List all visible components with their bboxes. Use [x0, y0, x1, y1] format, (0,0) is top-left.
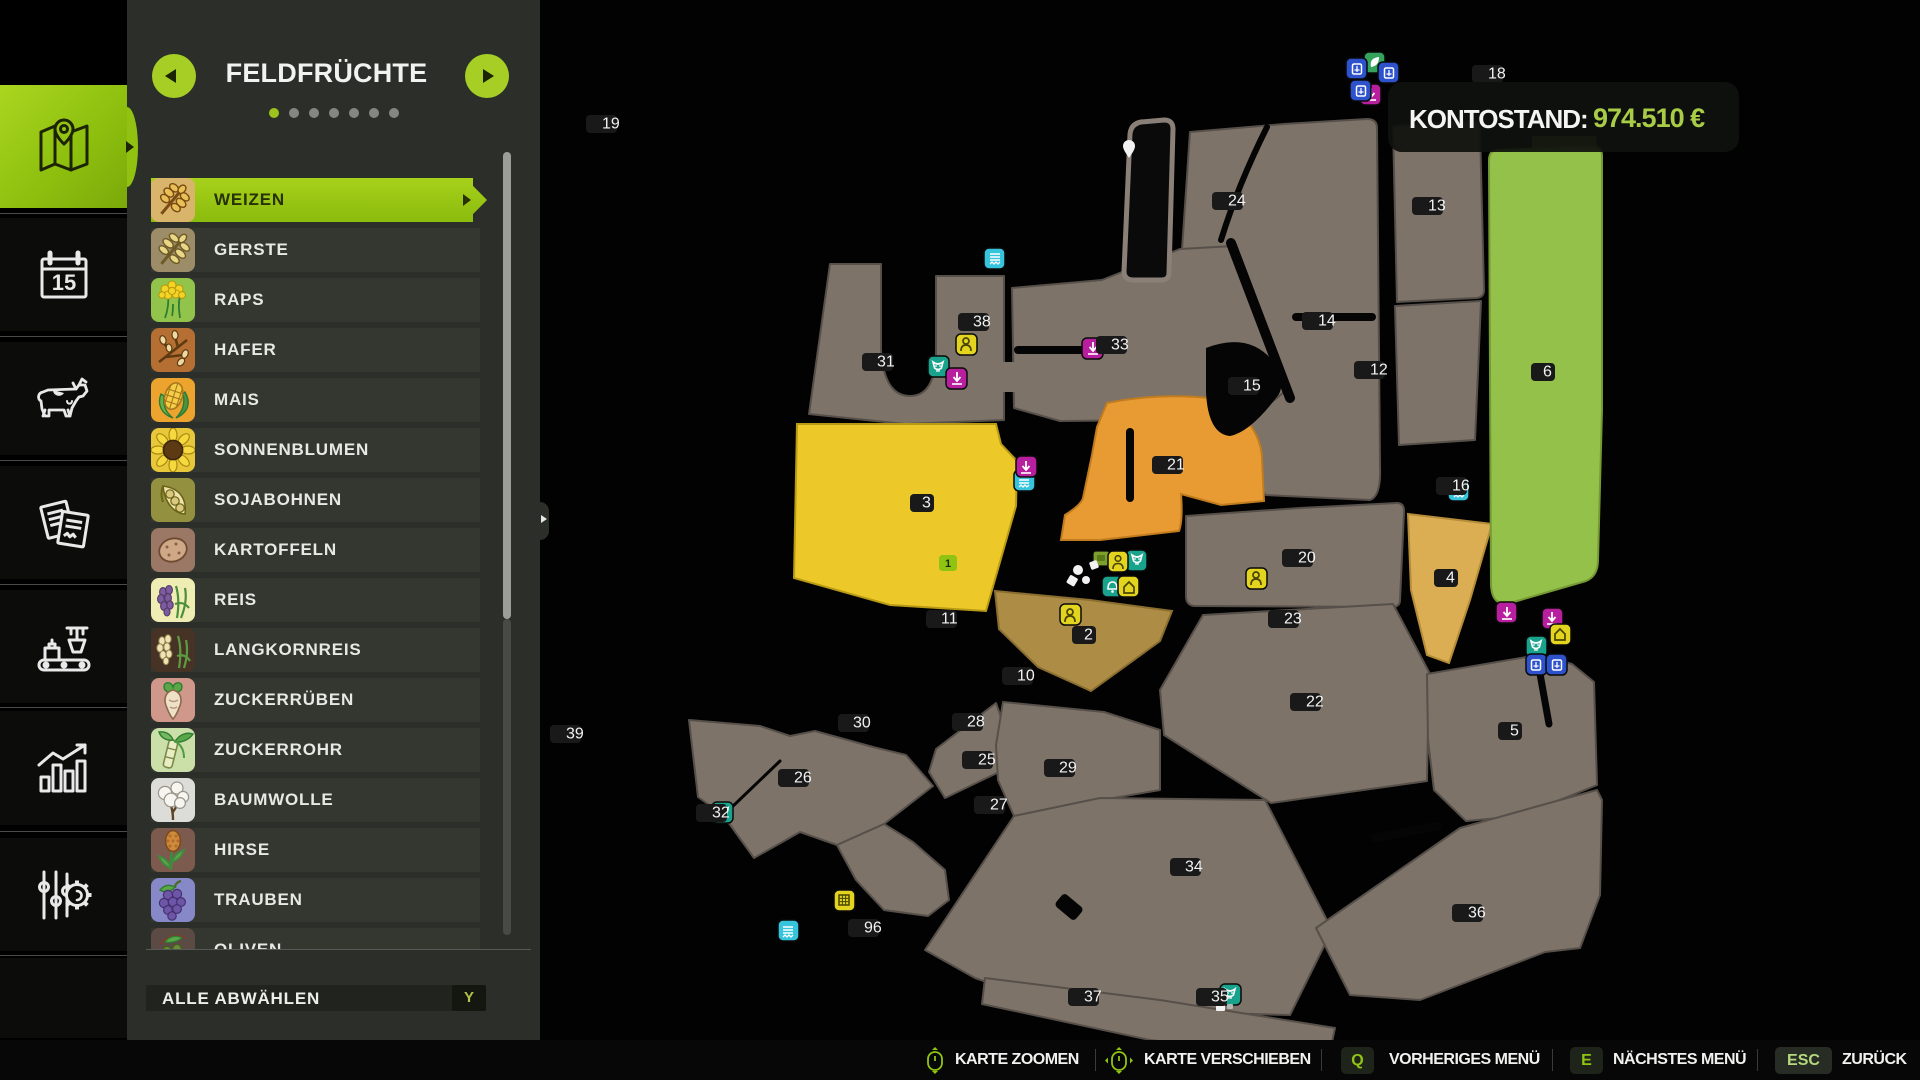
- svg-text:6: 6: [1543, 364, 1552, 381]
- svg-text:37: 37: [1084, 989, 1102, 1006]
- svg-text:22: 22: [1306, 694, 1324, 711]
- svg-text:10: 10: [1017, 668, 1035, 685]
- svg-text:33: 33: [1111, 337, 1129, 354]
- svg-text:16: 16: [1452, 478, 1470, 495]
- svg-text:20: 20: [1298, 550, 1316, 567]
- svg-text:24: 24: [1228, 193, 1246, 210]
- svg-text:28: 28: [967, 714, 985, 731]
- svg-text:31: 31: [877, 354, 895, 371]
- svg-text:15: 15: [51, 270, 75, 295]
- svg-text:1: 1: [945, 558, 951, 570]
- svg-text:36: 36: [1468, 905, 1486, 922]
- svg-text:27: 27: [990, 797, 1008, 814]
- svg-text:25: 25: [978, 752, 996, 769]
- svg-text:5: 5: [1510, 723, 1519, 740]
- svg-text:12: 12: [1370, 362, 1388, 379]
- svg-text:34: 34: [1185, 859, 1203, 876]
- svg-text:29: 29: [1059, 760, 1077, 777]
- svg-text:14: 14: [1318, 313, 1336, 330]
- svg-text:13: 13: [1428, 198, 1446, 215]
- svg-text:15: 15: [1243, 378, 1261, 395]
- svg-text:96: 96: [864, 920, 882, 937]
- svg-text:23: 23: [1284, 611, 1302, 628]
- svg-text:4: 4: [1446, 570, 1455, 587]
- svg-text:38: 38: [973, 314, 991, 331]
- svg-text:39: 39: [566, 726, 584, 743]
- svg-text:3: 3: [922, 495, 931, 512]
- svg-text:30: 30: [853, 715, 871, 732]
- svg-text:35: 35: [1211, 989, 1229, 1006]
- svg-text:18: 18: [1488, 66, 1506, 83]
- svg-text:32: 32: [712, 805, 730, 822]
- svg-text:11: 11: [941, 611, 958, 628]
- svg-text:19: 19: [602, 116, 620, 133]
- svg-text:2: 2: [1084, 627, 1093, 644]
- svg-text:21: 21: [1167, 457, 1185, 474]
- svg-text:26: 26: [794, 770, 812, 787]
